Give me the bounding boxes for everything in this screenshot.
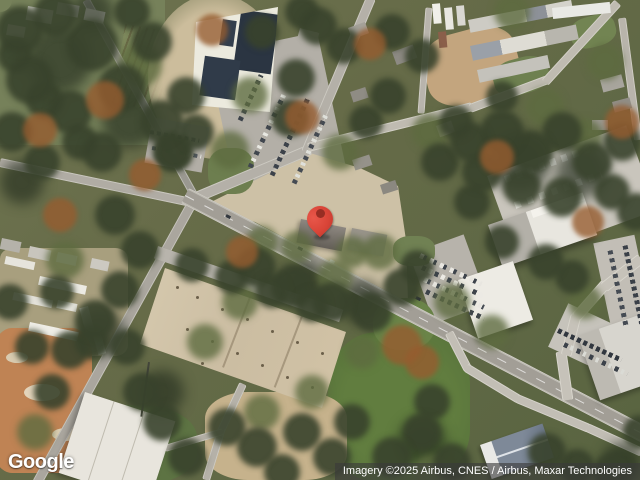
pin-body (302, 201, 339, 238)
map-pin[interactable] (303, 196, 337, 242)
car-on-road (297, 246, 303, 251)
map-attribution: Imagery ©2025 Airbus, CNES / Airbus, Max… (335, 463, 640, 480)
car-row (152, 146, 202, 159)
car-row (238, 74, 264, 121)
truck-row (514, 171, 603, 209)
car-on-road (415, 296, 421, 301)
satellite-map-canvas[interactable]: Google Imagery ©2025 Airbus, CNES / Airb… (0, 0, 640, 480)
google-logo[interactable]: Google (8, 451, 74, 474)
pin-inner-circle (316, 209, 325, 218)
car-row (150, 130, 200, 143)
car-on-road (225, 214, 231, 219)
car-on-road (329, 259, 335, 264)
